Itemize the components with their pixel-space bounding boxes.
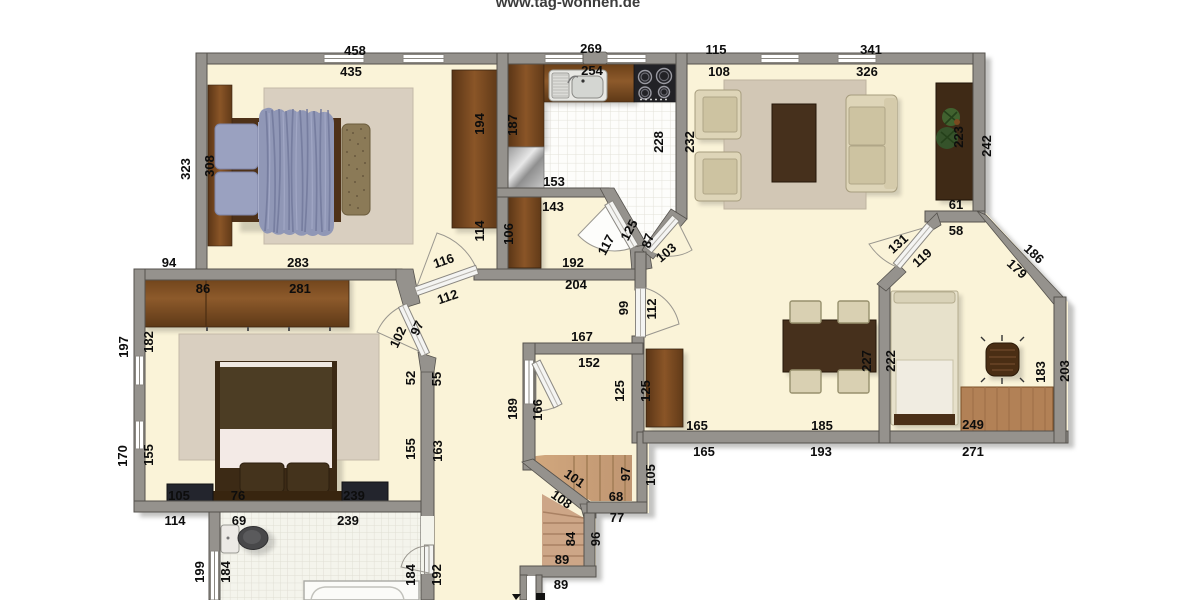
svg-text:52: 52: [403, 371, 418, 385]
svg-text:185: 185: [811, 418, 833, 433]
svg-text:167: 167: [571, 329, 593, 344]
svg-text:193: 193: [810, 444, 832, 459]
svg-text:165: 165: [686, 418, 708, 433]
svg-text:203: 203: [1057, 360, 1072, 382]
svg-text:106: 106: [501, 223, 516, 245]
svg-text:114: 114: [472, 220, 487, 242]
svg-text:68: 68: [609, 489, 623, 504]
svg-text:165: 165: [693, 444, 715, 459]
svg-text:223: 223: [951, 126, 966, 148]
svg-text:155: 155: [141, 444, 156, 466]
svg-text:283: 283: [287, 255, 309, 270]
svg-text:269: 269: [580, 41, 602, 56]
svg-text:155: 155: [403, 438, 418, 460]
svg-text:96: 96: [588, 532, 603, 546]
svg-text:254: 254: [581, 63, 603, 78]
svg-text:152: 152: [578, 355, 600, 370]
svg-text:115: 115: [706, 42, 727, 57]
svg-text:341: 341: [860, 42, 882, 57]
svg-text:323: 323: [178, 158, 193, 180]
svg-text:86: 86: [196, 281, 210, 296]
svg-text:232: 232: [682, 131, 697, 153]
svg-text:163: 163: [430, 440, 445, 462]
svg-text:143: 143: [542, 199, 564, 214]
svg-text:271: 271: [962, 444, 984, 459]
svg-text:184: 184: [218, 560, 233, 582]
svg-text:166: 166: [530, 399, 545, 421]
svg-text:228: 228: [651, 131, 666, 153]
svg-text:61: 61: [949, 197, 963, 212]
svg-text:89: 89: [554, 577, 568, 592]
svg-text:125: 125: [638, 380, 653, 402]
svg-text:84: 84: [563, 531, 578, 546]
svg-text:192: 192: [562, 255, 584, 270]
svg-text:194: 194: [472, 112, 487, 134]
svg-text:182: 182: [141, 331, 156, 353]
svg-text:105: 105: [168, 488, 190, 503]
svg-text:222: 222: [883, 350, 898, 372]
svg-text:76: 76: [231, 488, 245, 503]
svg-text:326: 326: [856, 64, 878, 79]
svg-text:281: 281: [289, 281, 311, 296]
svg-text:227: 227: [859, 350, 874, 372]
svg-text:108: 108: [708, 64, 730, 79]
svg-text:77: 77: [610, 510, 624, 525]
svg-text:197: 197: [116, 336, 131, 358]
svg-text:239: 239: [337, 513, 359, 528]
svg-text:89: 89: [555, 552, 569, 567]
svg-text:99: 99: [616, 301, 631, 315]
svg-text:www.tag-wohnen.de: www.tag-wohnen.de: [495, 0, 640, 11]
svg-text:112: 112: [644, 299, 659, 320]
svg-text:458: 458: [344, 43, 366, 58]
svg-text:55: 55: [429, 372, 444, 386]
svg-text:187: 187: [505, 114, 520, 136]
svg-text:183: 183: [1033, 361, 1048, 383]
svg-text:192: 192: [429, 564, 444, 586]
svg-text:114: 114: [165, 513, 187, 528]
svg-text:199: 199: [192, 561, 207, 583]
svg-text:94: 94: [162, 255, 177, 270]
svg-text:184: 184: [403, 563, 418, 585]
svg-text:69: 69: [232, 513, 246, 528]
svg-text:125: 125: [612, 380, 627, 402]
svg-text:105: 105: [643, 464, 658, 486]
svg-text:242: 242: [979, 135, 994, 157]
svg-text:308: 308: [202, 155, 217, 177]
svg-text:204: 204: [565, 277, 587, 292]
svg-text:153: 153: [543, 174, 565, 189]
svg-text:58: 58: [949, 223, 963, 238]
svg-text:170: 170: [115, 445, 130, 467]
svg-text:435: 435: [340, 64, 362, 79]
svg-text:239: 239: [343, 488, 365, 503]
svg-text:249: 249: [962, 417, 984, 432]
svg-text:189: 189: [505, 398, 520, 420]
svg-text:97: 97: [618, 467, 633, 481]
